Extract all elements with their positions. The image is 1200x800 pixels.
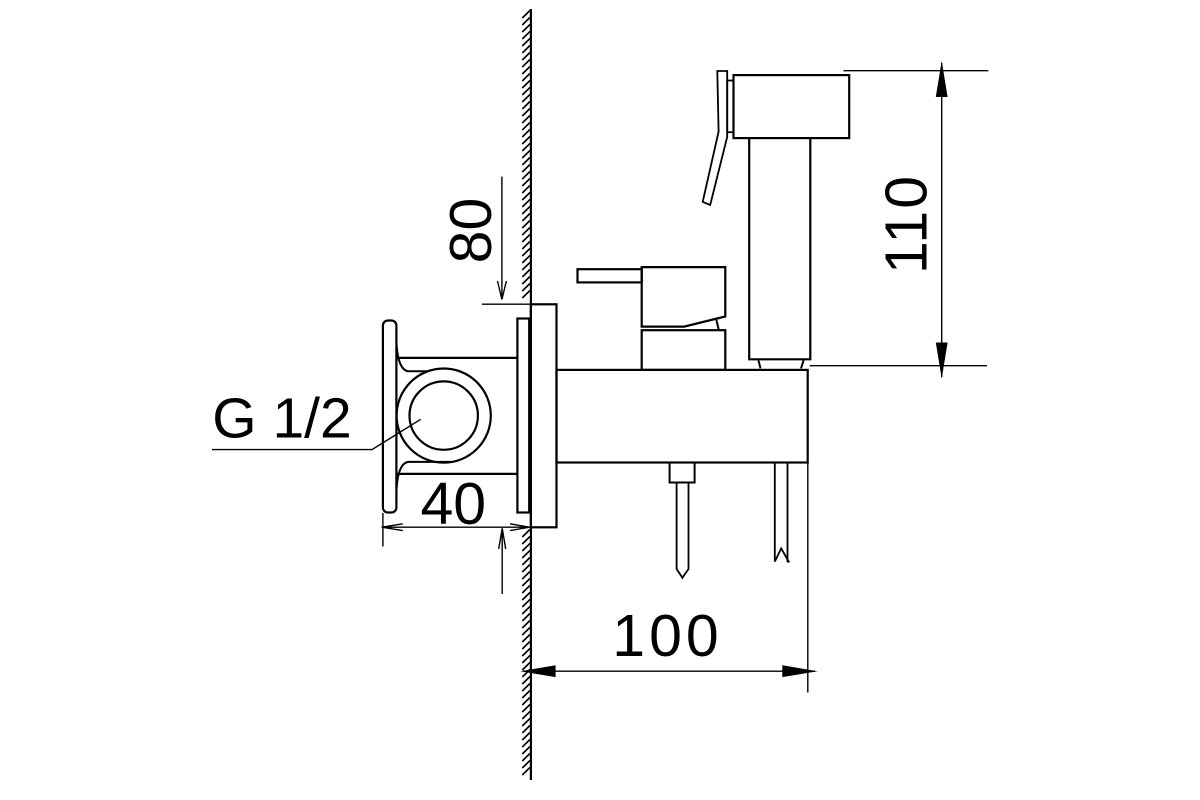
svg-text:110: 110 <box>873 174 939 274</box>
svg-text:40: 40 <box>420 471 486 537</box>
svg-text:G 1/2: G 1/2 <box>212 387 351 451</box>
svg-text:80: 80 <box>438 198 504 264</box>
svg-text:100: 100 <box>612 603 722 669</box>
